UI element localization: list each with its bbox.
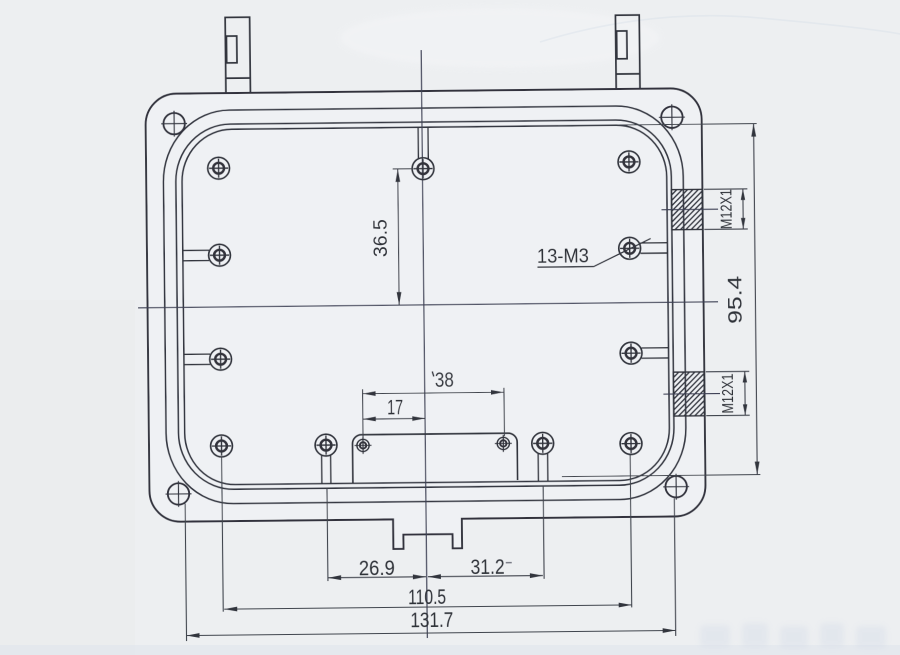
svg-text:M12X1: M12X1	[720, 373, 737, 413]
svg-text:31.2: 31.2	[470, 556, 504, 579]
svg-text:131.7: 131.7	[410, 609, 453, 632]
svg-text:38: 38	[435, 369, 454, 392]
svg-text:36.5: 36.5	[370, 219, 392, 257]
svg-text:M12X1: M12X1	[718, 189, 735, 229]
svg-text:26.9: 26.9	[359, 557, 395, 580]
svg-text:110.5: 110.5	[408, 586, 446, 609]
svg-text:13-M3: 13-M3	[537, 245, 589, 268]
svg-text:95.4: 95.4	[724, 275, 747, 323]
svg-text:17: 17	[387, 396, 403, 419]
